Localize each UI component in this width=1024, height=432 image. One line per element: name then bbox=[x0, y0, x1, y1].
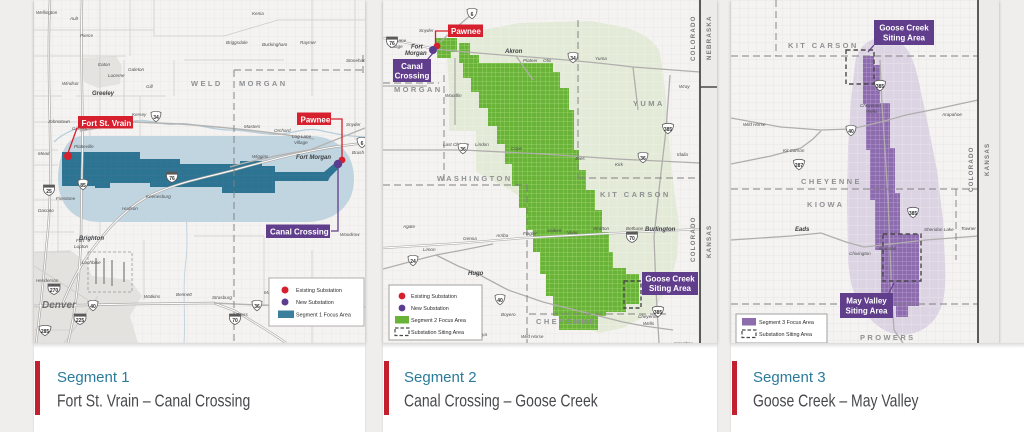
svg-text:287: 287 bbox=[795, 163, 804, 169]
svg-text:Mead: Mead bbox=[38, 151, 50, 156]
svg-text:MORGAN: MORGAN bbox=[394, 85, 443, 94]
svg-text:Pierce: Pierce bbox=[80, 33, 93, 38]
svg-text:Lupton: Lupton bbox=[74, 244, 88, 249]
svg-text:Fort St. Vrain: Fort St. Vrain bbox=[82, 119, 132, 128]
svg-text:Cheyenne: Cheyenne bbox=[860, 103, 881, 108]
svg-text:CHEYENNE: CHEYENNE bbox=[536, 317, 597, 326]
svg-text:KIT CARSON: KIT CARSON bbox=[600, 190, 671, 199]
svg-text:40: 40 bbox=[497, 298, 503, 304]
svg-text:Wild Horse: Wild Horse bbox=[521, 334, 544, 339]
svg-text:76: 76 bbox=[169, 176, 175, 182]
svg-text:Briggsdale: Briggsdale bbox=[226, 40, 248, 45]
svg-text:Wild Horse: Wild Horse bbox=[743, 122, 766, 127]
svg-text:Dacono: Dacono bbox=[38, 208, 54, 213]
svg-text:WASHINGTON: WASHINGTON bbox=[437, 174, 513, 183]
svg-text:Masters: Masters bbox=[244, 124, 261, 129]
svg-text:Orchard: Orchard bbox=[274, 128, 291, 133]
svg-text:COLORADO: COLORADO bbox=[968, 146, 975, 192]
svg-text:Bethune: Bethune bbox=[626, 226, 644, 231]
svg-text:285: 285 bbox=[41, 329, 50, 335]
svg-text:KANSAS: KANSAS bbox=[706, 225, 713, 258]
svg-text:Ault: Ault bbox=[69, 16, 79, 21]
svg-text:KIT CARSON: KIT CARSON bbox=[788, 41, 859, 50]
svg-text:Wellington: Wellington bbox=[36, 10, 58, 15]
svg-text:CHEYENNE: CHEYENNE bbox=[801, 177, 862, 186]
svg-text:36: 36 bbox=[640, 156, 646, 162]
svg-text:KIOWA: KIOWA bbox=[807, 200, 844, 209]
svg-text:Pawnee: Pawnee bbox=[451, 27, 481, 36]
svg-text:Windsor: Windsor bbox=[62, 81, 79, 86]
svg-text:Keenesburg: Keenesburg bbox=[146, 194, 171, 199]
svg-text:Watkins: Watkins bbox=[144, 294, 161, 299]
svg-text:25: 25 bbox=[46, 189, 52, 195]
svg-text:24: 24 bbox=[410, 259, 416, 265]
svg-text:Genoa: Genoa bbox=[463, 236, 477, 241]
svg-text:34: 34 bbox=[153, 115, 159, 121]
svg-text:May Valley: May Valley bbox=[846, 297, 887, 306]
svg-text:Gill: Gill bbox=[146, 84, 154, 89]
svg-text:Brighton: Brighton bbox=[79, 236, 104, 242]
svg-text:Boyero: Boyero bbox=[501, 312, 516, 317]
svg-text:85: 85 bbox=[80, 183, 86, 189]
svg-text:70: 70 bbox=[629, 236, 635, 242]
svg-text:Firestone: Firestone bbox=[56, 196, 76, 201]
svg-text:385: 385 bbox=[909, 211, 918, 217]
svg-text:Otis: Otis bbox=[543, 58, 552, 63]
svg-text:Hugo: Hugo bbox=[468, 271, 484, 277]
svg-text:Existing Substation: Existing Substation bbox=[296, 288, 342, 294]
svg-text:COLORADO: COLORADO bbox=[690, 15, 697, 61]
svg-text:Brandon: Brandon bbox=[879, 246, 897, 251]
svg-text:385: 385 bbox=[654, 310, 663, 316]
svg-text:Sheridan Lake: Sheridan Lake bbox=[924, 227, 954, 232]
svg-text:Bennett: Bennett bbox=[176, 292, 193, 297]
svg-text:Vona: Vona bbox=[567, 230, 578, 235]
svg-text:Henderson: Henderson bbox=[36, 278, 59, 283]
svg-text:Cope: Cope bbox=[511, 146, 522, 151]
svg-text:Towner: Towner bbox=[961, 226, 976, 231]
svg-text:6: 6 bbox=[471, 12, 474, 18]
svg-text:Fort Morgan: Fort Morgan bbox=[296, 155, 331, 161]
svg-text:Kit Carson: Kit Carson bbox=[783, 148, 805, 153]
svg-text:NEBRASKA: NEBRASKA bbox=[706, 15, 713, 60]
svg-text:Crossing: Crossing bbox=[395, 72, 430, 81]
svg-text:COLORADO: COLORADO bbox=[690, 216, 697, 262]
svg-text:Arapahoe: Arapahoe bbox=[941, 112, 962, 117]
svg-text:Strasburg: Strasburg bbox=[212, 295, 232, 300]
svg-text:Buckingham: Buckingham bbox=[262, 42, 287, 47]
svg-text:Joes: Joes bbox=[574, 156, 585, 161]
svg-text:New Substation: New Substation bbox=[411, 306, 449, 312]
svg-text:40: 40 bbox=[90, 304, 96, 310]
svg-text:Wells: Wells bbox=[643, 321, 655, 326]
svg-text:Segment 1 Focus Area: Segment 1 Focus Area bbox=[296, 313, 351, 319]
svg-text:Village: Village bbox=[294, 140, 308, 145]
svg-text:Platteville: Platteville bbox=[74, 144, 94, 149]
svg-text:Kirk: Kirk bbox=[615, 162, 624, 167]
svg-text:Denver: Denver bbox=[42, 300, 77, 311]
svg-text:Platner: Platner bbox=[523, 58, 538, 63]
svg-text:Pawnee: Pawnee bbox=[301, 115, 331, 124]
svg-text:Yuma: Yuma bbox=[595, 56, 607, 61]
svg-text:Substation Siting Area: Substation Siting Area bbox=[759, 332, 812, 338]
svg-text:36: 36 bbox=[254, 304, 260, 310]
svg-text:6: 6 bbox=[361, 141, 364, 147]
svg-text:Siting Area: Siting Area bbox=[846, 307, 888, 316]
svg-text:Log Lane: Log Lane bbox=[292, 134, 312, 139]
svg-text:270: 270 bbox=[50, 288, 59, 294]
svg-text:Johnstown: Johnstown bbox=[47, 119, 70, 124]
svg-text:Galeton: Galeton bbox=[128, 67, 145, 72]
svg-text:Stratton: Stratton bbox=[593, 226, 610, 231]
svg-text:70: 70 bbox=[232, 318, 238, 324]
svg-text:Goose Creek: Goose Creek bbox=[645, 275, 695, 284]
svg-text:Brush: Brush bbox=[352, 150, 364, 155]
svg-text:Kenia: Kenia bbox=[252, 11, 264, 16]
svg-text:Eads: Eads bbox=[795, 227, 810, 233]
svg-text:Canal: Canal bbox=[401, 62, 423, 71]
svg-text:WELD: WELD bbox=[191, 79, 223, 88]
svg-text:YUMA: YUMA bbox=[633, 99, 665, 108]
svg-text:Lucerne: Lucerne bbox=[108, 73, 125, 78]
svg-text:PROWERS: PROWERS bbox=[860, 333, 916, 342]
svg-text:Idalia: Idalia bbox=[677, 152, 688, 157]
svg-text:Chivington: Chivington bbox=[849, 251, 871, 256]
svg-text:Segment 3 Focus Area: Segment 3 Focus Area bbox=[759, 320, 814, 326]
svg-text:Flagler: Flagler bbox=[523, 231, 538, 236]
svg-text:Snyder: Snyder bbox=[419, 28, 434, 33]
svg-text:Seibert: Seibert bbox=[547, 228, 562, 233]
svg-text:Stoneham: Stoneham bbox=[346, 58, 365, 63]
svg-text:Siting Area: Siting Area bbox=[883, 34, 925, 43]
svg-text:40: 40 bbox=[848, 129, 854, 135]
svg-text:Arriba: Arriba bbox=[495, 233, 509, 238]
svg-text:Substation Siting Area: Substation Siting Area bbox=[411, 330, 464, 336]
svg-text:Limon: Limon bbox=[423, 247, 436, 252]
svg-text:Wells: Wells bbox=[866, 109, 878, 114]
svg-text:76: 76 bbox=[389, 41, 395, 47]
svg-text:Existing Substation: Existing Substation bbox=[411, 294, 457, 300]
svg-text:Morgan: Morgan bbox=[405, 51, 427, 57]
svg-text:Fort: Fort bbox=[411, 45, 424, 51]
svg-text:Lochbuie: Lochbuie bbox=[82, 260, 101, 265]
svg-text:Canal Crossing: Canal Crossing bbox=[270, 228, 329, 237]
svg-text:Hudson: Hudson bbox=[122, 206, 138, 211]
svg-text:Segment 2 Focus Area: Segment 2 Focus Area bbox=[411, 318, 466, 324]
svg-text:36: 36 bbox=[460, 147, 466, 153]
svg-text:KANSAS: KANSAS bbox=[984, 143, 991, 176]
svg-text:MORGAN: MORGAN bbox=[239, 79, 288, 88]
svg-text:Snyder: Snyder bbox=[346, 122, 361, 127]
svg-text:Kersey: Kersey bbox=[132, 112, 147, 117]
svg-text:Agate: Agate bbox=[402, 224, 415, 229]
svg-text:Raymer: Raymer bbox=[300, 40, 317, 45]
svg-text:New Substation: New Substation bbox=[296, 300, 334, 306]
svg-text:Goose Creek: Goose Creek bbox=[879, 24, 929, 33]
svg-text:Wray: Wray bbox=[679, 84, 690, 89]
svg-text:Woodlin: Woodlin bbox=[445, 93, 462, 98]
svg-text:385: 385 bbox=[876, 84, 885, 90]
svg-text:Siting Area: Siting Area bbox=[649, 284, 691, 293]
svg-text:Lindon: Lindon bbox=[475, 142, 489, 147]
svg-text:Wiggins: Wiggins bbox=[252, 154, 269, 159]
svg-text:Greeley: Greeley bbox=[92, 91, 115, 97]
svg-text:Burlington: Burlington bbox=[645, 227, 676, 233]
svg-text:Woodrow: Woodrow bbox=[340, 232, 360, 237]
svg-text:Eaton: Eaton bbox=[98, 62, 110, 67]
svg-text:385: 385 bbox=[664, 127, 673, 133]
svg-text:Akron: Akron bbox=[504, 49, 523, 55]
svg-text:34: 34 bbox=[570, 56, 576, 62]
svg-text:225: 225 bbox=[76, 318, 85, 324]
